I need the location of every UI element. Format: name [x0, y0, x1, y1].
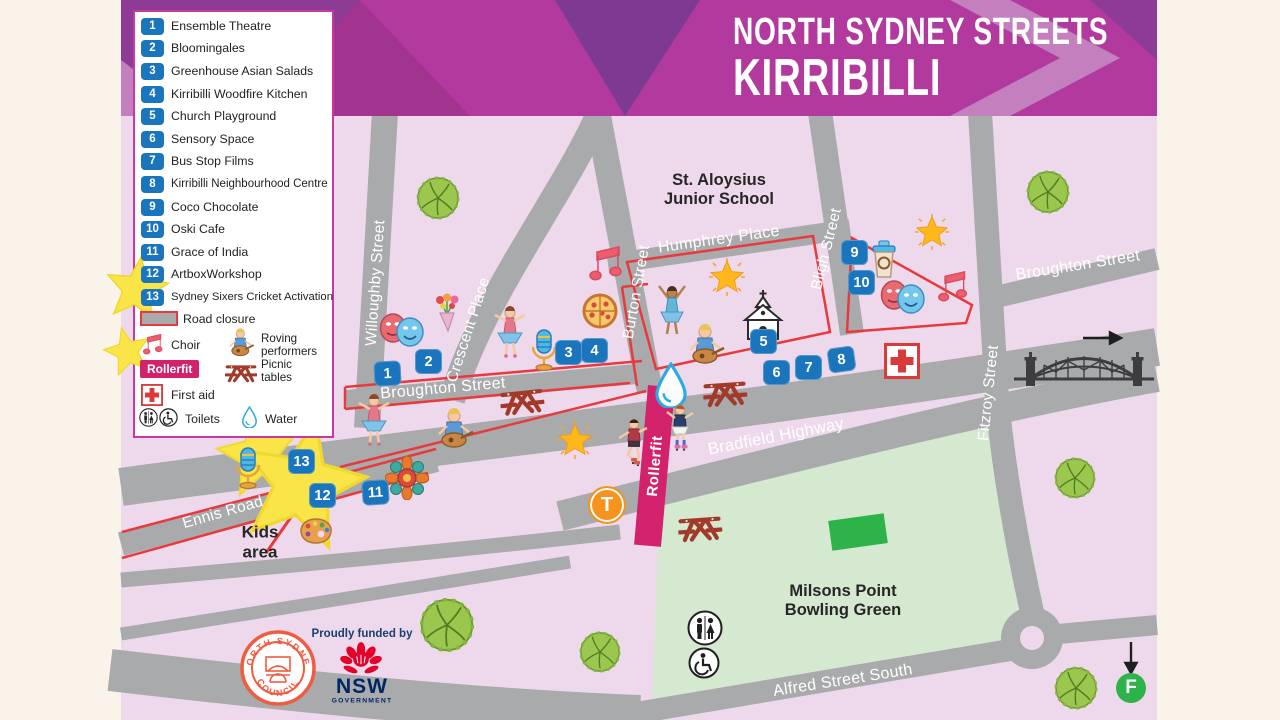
tree-icon	[415, 175, 461, 221]
legend-item-13: 13Sydney Sixers Cricket Activation	[141, 286, 333, 308]
sparkle-star-icon	[913, 213, 951, 251]
legend-item-3: 3Greenhouse Asian Salads	[141, 60, 313, 82]
toilets-label: Toilets	[185, 412, 220, 426]
dancer-icon	[654, 283, 690, 337]
map-badge-1: 1	[373, 360, 401, 386]
legend-item-6: 6Sensory Space	[141, 128, 254, 150]
picnic-tables-label: Picnictables	[261, 358, 292, 384]
kirribilli-event-map: { "header": {"line1": "NORTH SYDNEY STRE…	[0, 0, 1280, 720]
event-subtitle: KIRRIBILLI	[733, 48, 941, 108]
water-label: Water	[265, 412, 297, 426]
water-legend-icon	[241, 406, 258, 428]
legend: 1Ensemble Theatre 2Bloomingales 3Greenho…	[133, 10, 334, 438]
music-note-icon	[588, 243, 624, 283]
map-badge-3: 3	[555, 340, 582, 365]
first-aid-icon	[884, 343, 920, 379]
tree-icon	[1025, 169, 1071, 215]
accessible-legend-icon	[159, 408, 178, 427]
bowling-label-line1: Milsons Point	[785, 582, 901, 601]
toilets-icon	[687, 610, 723, 646]
legend-item-7: 7Bus Stop Films	[141, 150, 254, 172]
theatre-masks-icon	[378, 312, 426, 348]
map-badge-9: 9	[841, 240, 868, 265]
legend-item-11: 11Grace of India	[141, 241, 248, 263]
harbour-bridge-icon	[1014, 348, 1154, 394]
picnic-tables-icon	[225, 361, 257, 383]
rollerskater-icon	[618, 418, 648, 466]
map-badge-2: 2	[415, 349, 442, 374]
art-palette-icon	[299, 517, 333, 545]
picnic-table-icon	[702, 376, 748, 409]
map-badge-11: 11	[361, 479, 390, 506]
ferry-marker: F	[1116, 673, 1146, 703]
tree-icon	[578, 630, 622, 674]
roving-performers-label: Rovingperformers	[261, 332, 317, 358]
choir-icon	[142, 332, 164, 356]
map-badge-7: 7	[795, 355, 822, 380]
music-note-icon	[937, 268, 969, 304]
sparkle-star-icon	[555, 420, 595, 460]
school-label-line1: St. Aloysius	[664, 171, 774, 190]
legend-item-9: 9Coco Chocolate	[141, 196, 259, 218]
road-east-stub	[1058, 625, 1157, 634]
school-label-line2: Junior School	[664, 190, 774, 209]
funded-by-label: Proudly funded by	[312, 628, 413, 640]
pizza-icon	[580, 293, 620, 329]
north-sydney-council-logo: NORTH SYDNEY COUNCIL	[240, 630, 316, 706]
first-aid-legend-icon	[141, 384, 163, 406]
legend-item-5: 5Church Playground	[141, 105, 276, 127]
legend-item-1: 1Ensemble Theatre	[141, 15, 271, 37]
map-badge-5: 5	[750, 329, 777, 354]
picnic-table-icon	[677, 511, 723, 544]
road-closure-swatch	[140, 311, 178, 326]
nsw-label: NSW	[336, 675, 388, 699]
map-badge-8: 8	[826, 345, 856, 374]
kids-area-label-line1: Kids	[242, 522, 279, 542]
ballerina-icon	[492, 306, 528, 358]
legend-item-12: 12ArtboxWorkshop	[141, 263, 262, 285]
road-closure-label: Road closure	[183, 312, 255, 326]
flower-bouquet-icon	[432, 293, 462, 333]
guitarist-icon	[435, 408, 475, 450]
legend-item-2: 2Bloomingales	[141, 37, 245, 59]
government-label: GOVERNMENT	[332, 698, 393, 705]
choir-label: Choir	[171, 338, 200, 352]
accessible-toilet-icon	[688, 647, 720, 679]
flower-mandala-icon	[385, 456, 429, 500]
nsw-waratah-logo	[340, 642, 382, 678]
tree-icon	[418, 596, 476, 654]
rollerskater-icon	[665, 404, 695, 452]
tree-icon	[1053, 456, 1097, 500]
rollerfit-legend-badge: Rollerfit	[140, 360, 199, 378]
legend-item-4: 4Kirribilli Woodfire Kitchen	[141, 83, 307, 105]
map-badge-13: 13	[288, 449, 315, 474]
water-station-icon	[653, 362, 689, 408]
map-badge-12: 12	[309, 483, 336, 508]
map-badge-10: 10	[848, 270, 875, 295]
toilets-legend-icon	[139, 408, 158, 427]
guitarist-icon	[686, 324, 726, 366]
map-badge-4: 4	[581, 338, 608, 363]
train-station-marker: T	[588, 486, 626, 524]
microphone-icon	[233, 446, 263, 490]
roving-performers-icon	[227, 328, 255, 358]
legend-item-10: 10Oski Cafe	[141, 218, 225, 240]
first-aid-label: First aid	[171, 388, 215, 402]
bowling-label-line2: Bowling Green	[785, 601, 901, 620]
kids-area-label-line2: area	[242, 542, 279, 562]
theatre-masks-icon	[879, 279, 927, 315]
map-badge-6: 6	[763, 360, 790, 385]
tree-icon	[1053, 665, 1099, 711]
legend-item-8: 8Kirribilli Neighbourhood Centre	[141, 173, 328, 195]
